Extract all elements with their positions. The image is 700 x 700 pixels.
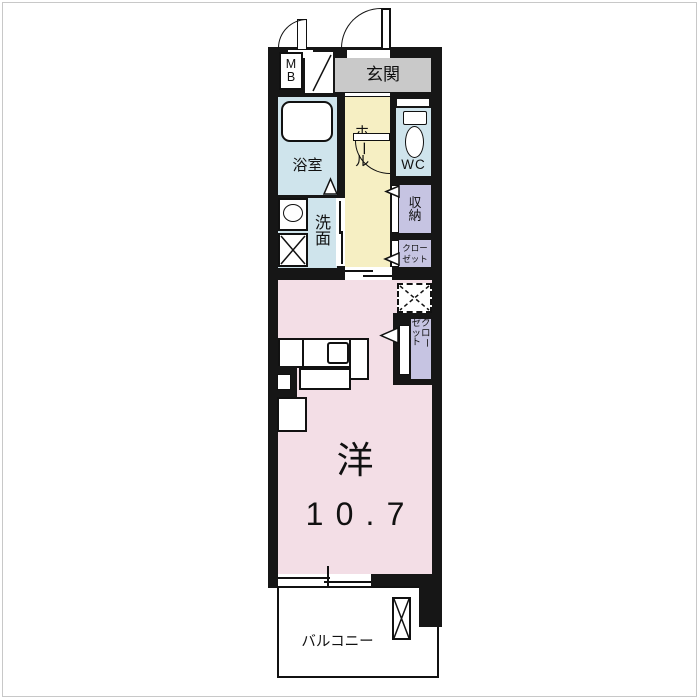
balcony-label: バルコニー [301, 635, 373, 650]
washroom-door-line-2 [341, 231, 343, 264]
kitchen-counter-step [299, 368, 351, 390]
room-storage: 収納 [399, 185, 431, 233]
closet-lower-label-col1: クロー [421, 319, 431, 379]
kitchen-counter-right [349, 338, 369, 380]
room-entrance: 玄関 [335, 58, 431, 92]
room-closet-lower: クロー ゼット [411, 319, 431, 379]
balcony-label-box: バルコニー [285, 633, 390, 653]
closet-upper-door [391, 240, 399, 267]
entrance-label: 玄関 [366, 66, 400, 84]
room-type-label-box: 洋 [278, 440, 432, 482]
wc-door-leaf [353, 133, 390, 141]
entrance-door-threshold [347, 50, 390, 58]
washroom-door-line-1 [339, 201, 341, 234]
kitchen-sink-icon [327, 342, 349, 364]
hall-room-door-line-1 [345, 270, 373, 272]
hall-room-door-line-2 [363, 275, 392, 277]
kitchen-counter-divider [302, 338, 304, 368]
floorplan-image: MB 玄関 浴室 洗面 ホール WC 収納 クロー ゼット [0, 0, 700, 700]
meter-box: MB [279, 52, 303, 90]
room-size-label: 10.7 [306, 498, 417, 532]
entrance-door-leaf [381, 8, 391, 50]
hall-room-sliding-door [345, 267, 392, 280]
refrigerator-space [397, 283, 432, 313]
balcony-window-line-2 [324, 581, 371, 583]
sink-icon [283, 204, 303, 222]
washer-pan [278, 233, 308, 267]
storage-door [391, 185, 399, 233]
wc-label: WC [401, 158, 426, 172]
room-size-label-box: 10.7 [278, 495, 432, 535]
kitchen-cabinet [277, 397, 307, 432]
bathtub-icon [281, 101, 333, 142]
entry-closet [305, 52, 333, 93]
wc-shelf [397, 99, 429, 106]
mb-label: MB [286, 58, 296, 84]
room-type-label: 洋 [337, 442, 374, 481]
toilet-bowl-icon [405, 126, 424, 158]
balcony-outline [277, 586, 439, 678]
pipe-space [392, 597, 411, 640]
closet-lower-label-col2: ゼット [411, 319, 421, 379]
washroom-label: 洗面 [315, 216, 331, 249]
bathroom-label: 浴室 [292, 158, 322, 174]
closet-upper-label-line1: クロー [402, 243, 428, 254]
toilet-tank-icon [403, 111, 427, 125]
closet-upper-label-line2: ゼット [402, 254, 428, 265]
room-closet-upper: クロー ゼット [399, 240, 431, 267]
balcony-corner-wall [419, 586, 442, 627]
wc-label-box: WC [396, 155, 431, 175]
kitchen-small-box [277, 374, 291, 390]
washroom-label-box: 洗面 [309, 198, 337, 266]
balcony-window-line-1 [278, 577, 330, 579]
closet-lower-door [399, 325, 410, 375]
bathroom-label-box: 浴室 [278, 152, 337, 180]
storage-label: 収納 [408, 196, 421, 223]
